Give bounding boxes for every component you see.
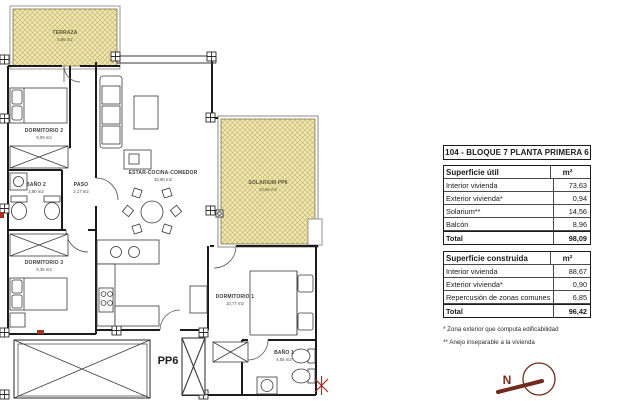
label-bano-1: BAÑO 1 (274, 349, 294, 356)
label-terraza: TERRAZA (53, 30, 78, 36)
label-dormitorio-3: DORMITORIO 3 (25, 260, 63, 266)
north-label: N (503, 373, 512, 387)
bed-dormitorio-1 (250, 271, 313, 335)
row-total-construida: Total 96,42 (444, 304, 590, 317)
table-superficie-util: Superficie útil m² Interior vivienda 73,… (443, 165, 591, 245)
area-bano-2: 3,80 m2 (28, 189, 44, 194)
glass-wall (117, 56, 216, 63)
unit-cell: m² (551, 252, 590, 264)
wardrobe-hall (213, 342, 248, 362)
floorplan-sheet: TERRAZA 8,96 m2 DORMITORIO 2 9,09 m2 BAÑ… (0, 0, 630, 401)
area-estar: 33,90 m2 (154, 177, 173, 182)
dining-table (122, 188, 181, 234)
label-estar: ESTAR-COCINA-COMEDOR (129, 170, 198, 176)
hall-cabinet (190, 286, 207, 313)
compass: N (490, 356, 574, 401)
unit-cell: m² (551, 166, 590, 178)
surface-info-panel: 104 - BLOQUE 7 PLANTA PRIMERA 6 Superfic… (443, 145, 591, 352)
footnote-2: ** Anejo inseparable a la vivienda (443, 339, 591, 346)
row-interior-vivienda: Interior vivienda 73,63 (444, 179, 590, 192)
plan-title: 104 - BLOQUE 7 PLANTA PRIMERA 6 (443, 145, 591, 160)
area-terraza: 8,96 m2 (57, 37, 73, 42)
floor-plan-drawing: TERRAZA 8,96 m2 DORMITORIO 2 9,09 m2 BAÑ… (0, 0, 400, 401)
bath2-fixtures (10, 173, 60, 220)
void-below (14, 340, 150, 398)
row-balcon: Balcón 8,96 (444, 218, 590, 231)
stair-shaft (182, 338, 205, 395)
label-paso: PASO (74, 182, 88, 188)
wardrobe-dormitorio-2 (10, 146, 68, 168)
wardrobe-dormitorio-3 (10, 234, 68, 256)
row-solarium: Solarium** 14,56 (444, 205, 590, 218)
label-bano-2: BAÑO 2 (26, 181, 46, 188)
kitchen-counter (97, 240, 159, 326)
label-dormitorio-1: DORMITORIO 1 (216, 294, 254, 300)
footnote-1: * Zona exterior que computa edificabilid… (443, 326, 591, 333)
tv-bench (124, 150, 151, 169)
unit-label-pp6: PP6 (158, 355, 179, 367)
row-exterior-vivienda-c: Exterior vivienda* 0,90 (444, 278, 590, 291)
footnotes: * Zona exterior que computa edificabilid… (443, 326, 591, 346)
bed-dormitorio-3 (10, 278, 67, 327)
area-dormitorio-1: 10,77 m2 (226, 301, 245, 306)
coffee-table (134, 96, 158, 129)
label-solarium: SOLARIUM PP6 (248, 180, 287, 186)
area-dormitorio-3: 9,35 m2 (36, 267, 52, 272)
label-dormitorio-2: DORMITORIO 2 (25, 128, 63, 134)
area-bano-1: 4,55 m2 (276, 357, 292, 362)
area-paso: 2,17 m2 (73, 189, 89, 194)
table-header-construida: Superficie construida m² (444, 252, 590, 265)
area-solarium: 14,56 m2 (259, 187, 278, 192)
row-interior-vivienda-c: Interior vivienda 88,67 (444, 265, 590, 278)
compass-circle (523, 363, 555, 395)
area-dormitorio-2: 9,09 m2 (36, 135, 52, 140)
row-exterior-vivienda: Exterior vivienda* 0,94 (444, 192, 590, 205)
row-total-util: Total 98,09 (444, 231, 590, 244)
bed-dormitorio-2 (10, 88, 67, 123)
table-header-util: Superficie útil m² (444, 166, 590, 179)
row-zonas-comunes: Repercusión de zonas comunes 6,85 (444, 291, 590, 304)
table-superficie-construida: Superficie construida m² Interior vivien… (443, 251, 591, 318)
sofa (100, 76, 122, 148)
